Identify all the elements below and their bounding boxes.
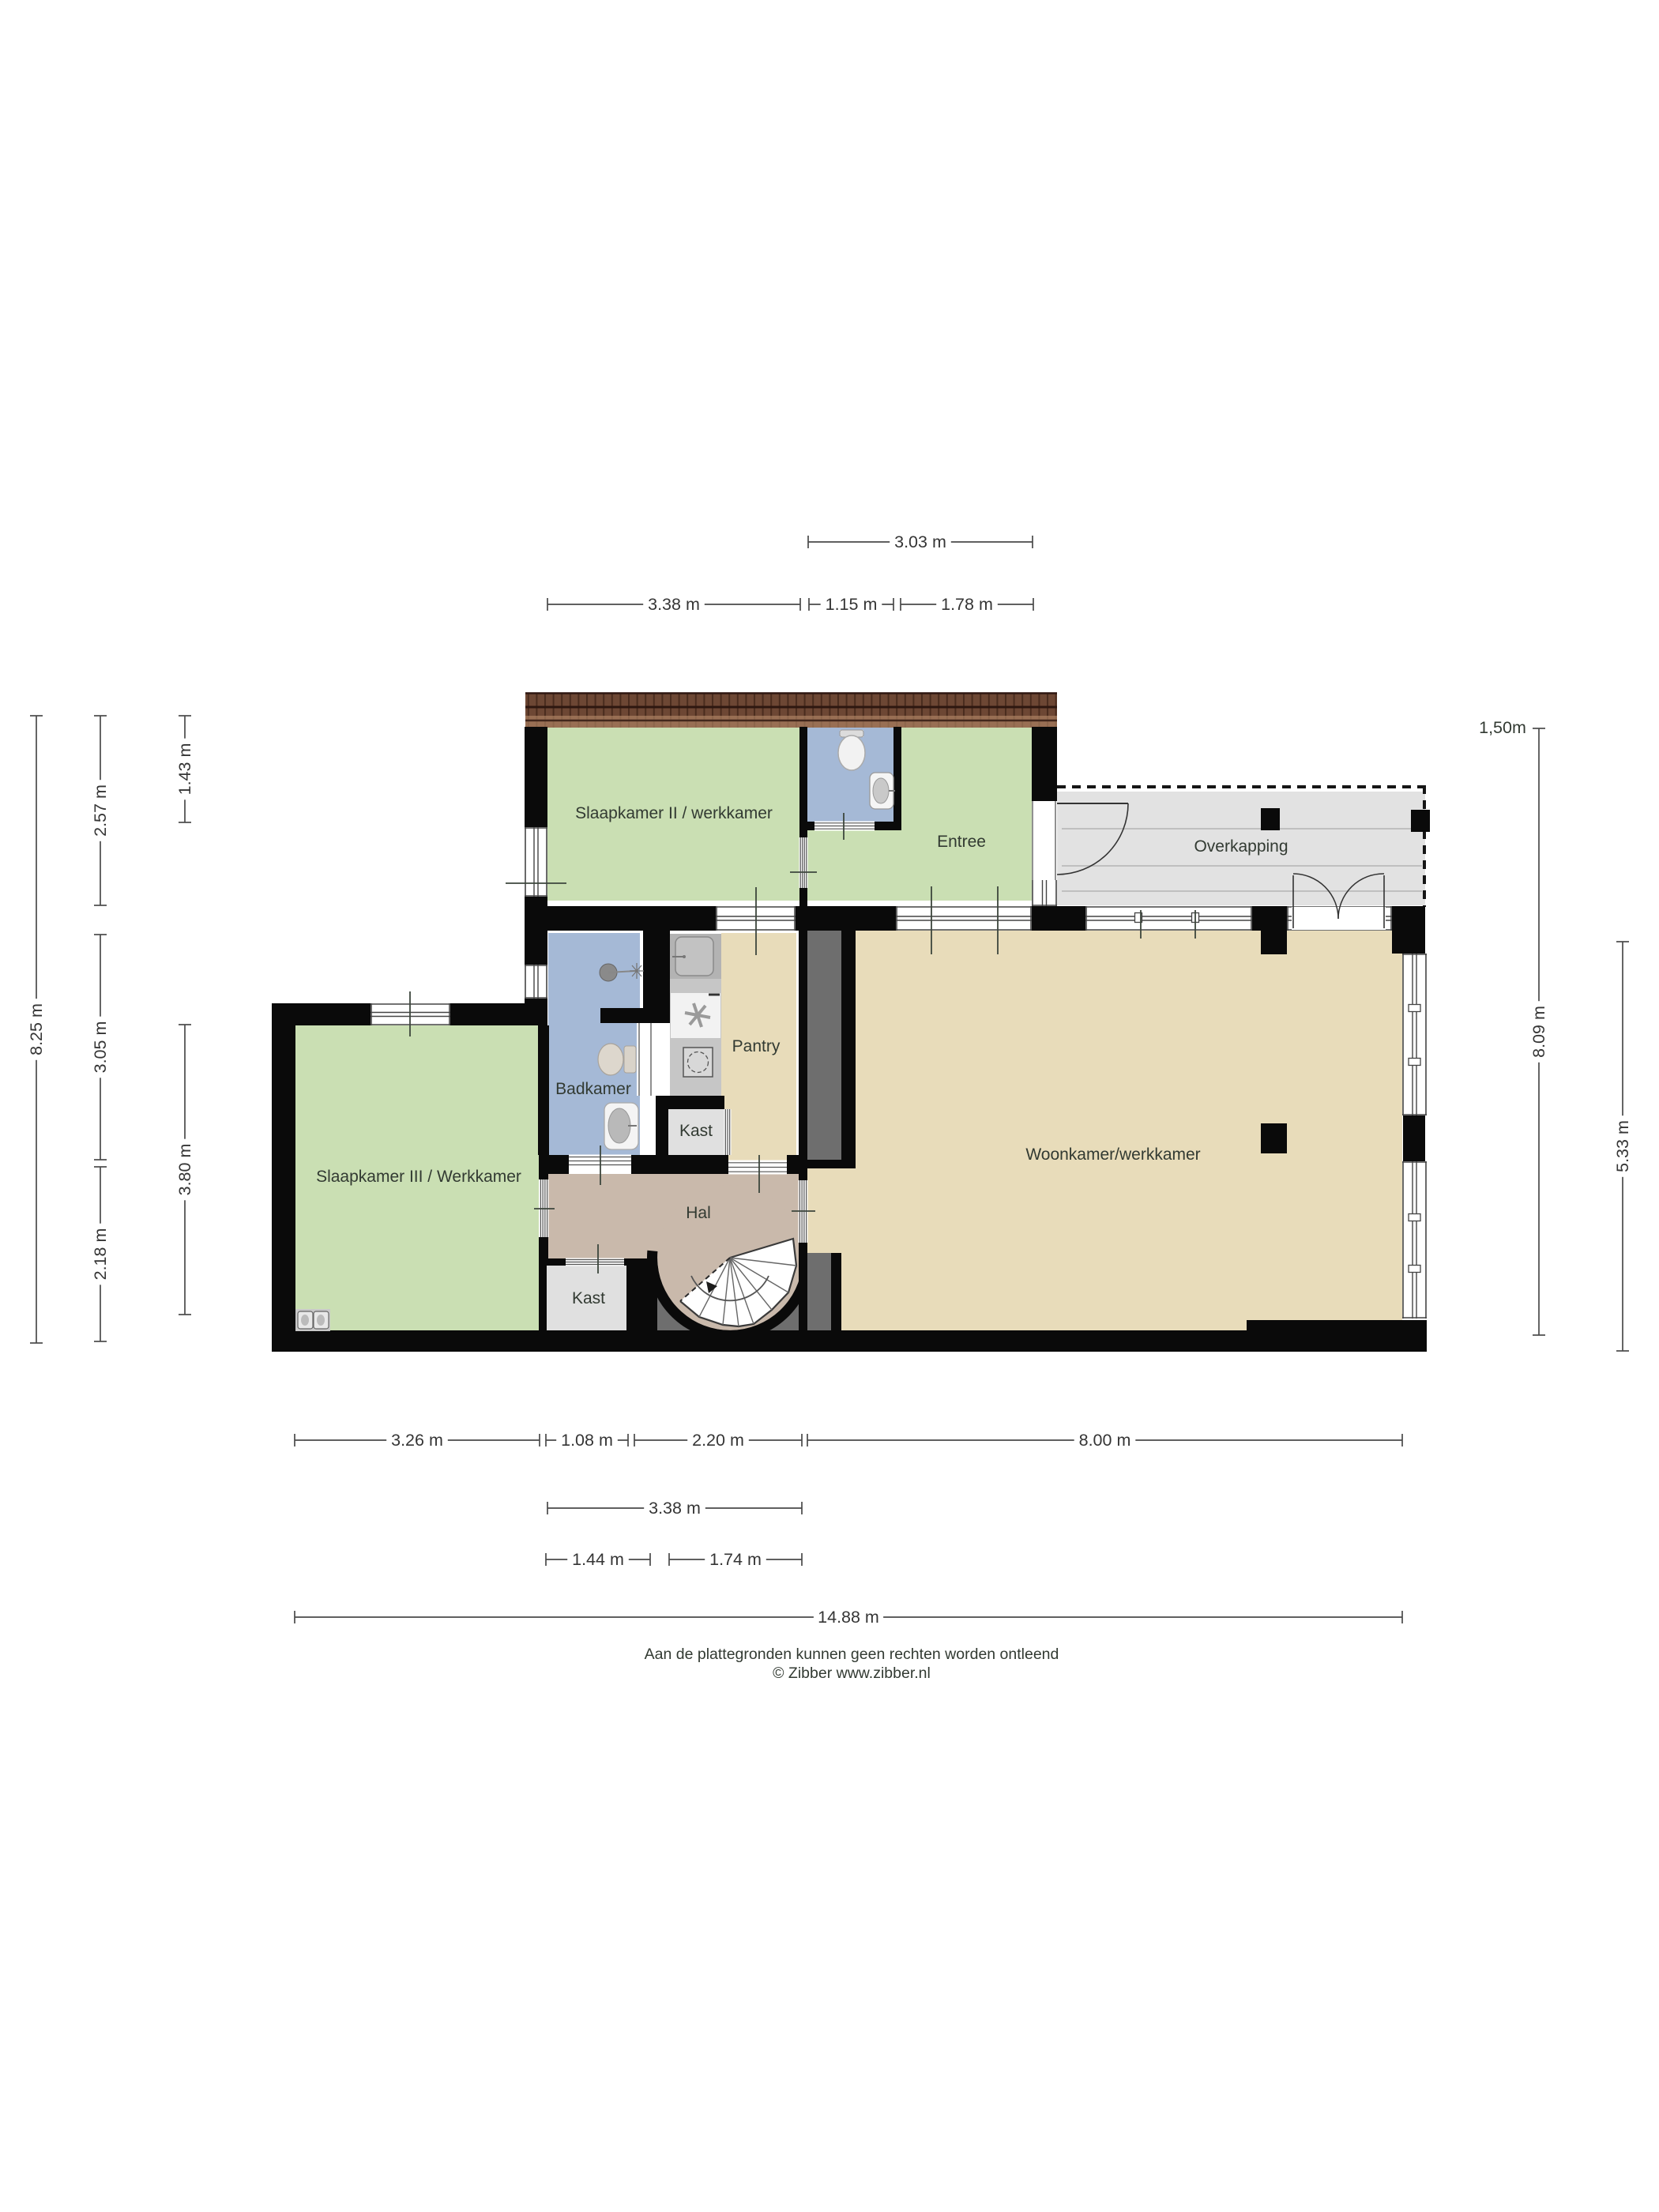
svg-text:2.20 m: 2.20 m [692, 1431, 744, 1450]
svg-text:1.15 m: 1.15 m [826, 595, 878, 614]
svg-text:© Zibber www.zibber.nl: © Zibber www.zibber.nl [773, 1665, 931, 1682]
svg-text:8.09 m: 8.09 m [1529, 1006, 1548, 1058]
svg-text:2.18 m: 2.18 m [91, 1228, 110, 1281]
svg-text:8.25 m: 8.25 m [27, 1003, 46, 1055]
svg-text:3.03 m: 3.03 m [894, 532, 946, 551]
svg-text:Woonkamer/werkkamer: Woonkamer/werkkamer [1025, 1145, 1200, 1164]
svg-text:2.57 m: 2.57 m [91, 784, 110, 837]
svg-text:3.80 m: 3.80 m [175, 1144, 194, 1196]
svg-text:Kast: Kast [679, 1122, 713, 1140]
svg-text:Slaapkamer III / Werkkamer: Slaapkamer III / Werkkamer [316, 1168, 521, 1186]
svg-text:3.26 m: 3.26 m [391, 1431, 443, 1450]
svg-text:Aan de plattegronden kunnen ge: Aan de plattegronden kunnen geen rechten… [645, 1646, 1059, 1663]
svg-text:1.44 m: 1.44 m [572, 1550, 624, 1569]
svg-text:14.88 m: 14.88 m [818, 1608, 879, 1627]
svg-text:1.74 m: 1.74 m [709, 1550, 762, 1569]
svg-text:1.08 m: 1.08 m [561, 1431, 613, 1450]
svg-text:1.78 m: 1.78 m [941, 595, 993, 614]
svg-text:5.33 m: 5.33 m [1613, 1120, 1632, 1172]
svg-text:1.43 m: 1.43 m [175, 743, 194, 796]
svg-text:Hal: Hal [686, 1204, 711, 1222]
svg-text:3.38 m: 3.38 m [649, 1499, 701, 1518]
svg-text:Slaapkamer II / werkkamer: Slaapkamer II / werkkamer [575, 804, 773, 822]
svg-text:Kast: Kast [572, 1289, 605, 1307]
svg-text:Overkapping: Overkapping [1194, 837, 1288, 856]
svg-text:Badkamer: Badkamer [555, 1080, 631, 1098]
svg-text:3.38 m: 3.38 m [648, 595, 700, 614]
svg-text:8.00 m: 8.00 m [1079, 1431, 1131, 1450]
svg-text:Entree: Entree [937, 833, 986, 851]
svg-text:1,50m: 1,50m [1479, 718, 1526, 737]
svg-text:Pantry: Pantry [732, 1037, 781, 1055]
svg-text:3.05 m: 3.05 m [91, 1021, 110, 1074]
